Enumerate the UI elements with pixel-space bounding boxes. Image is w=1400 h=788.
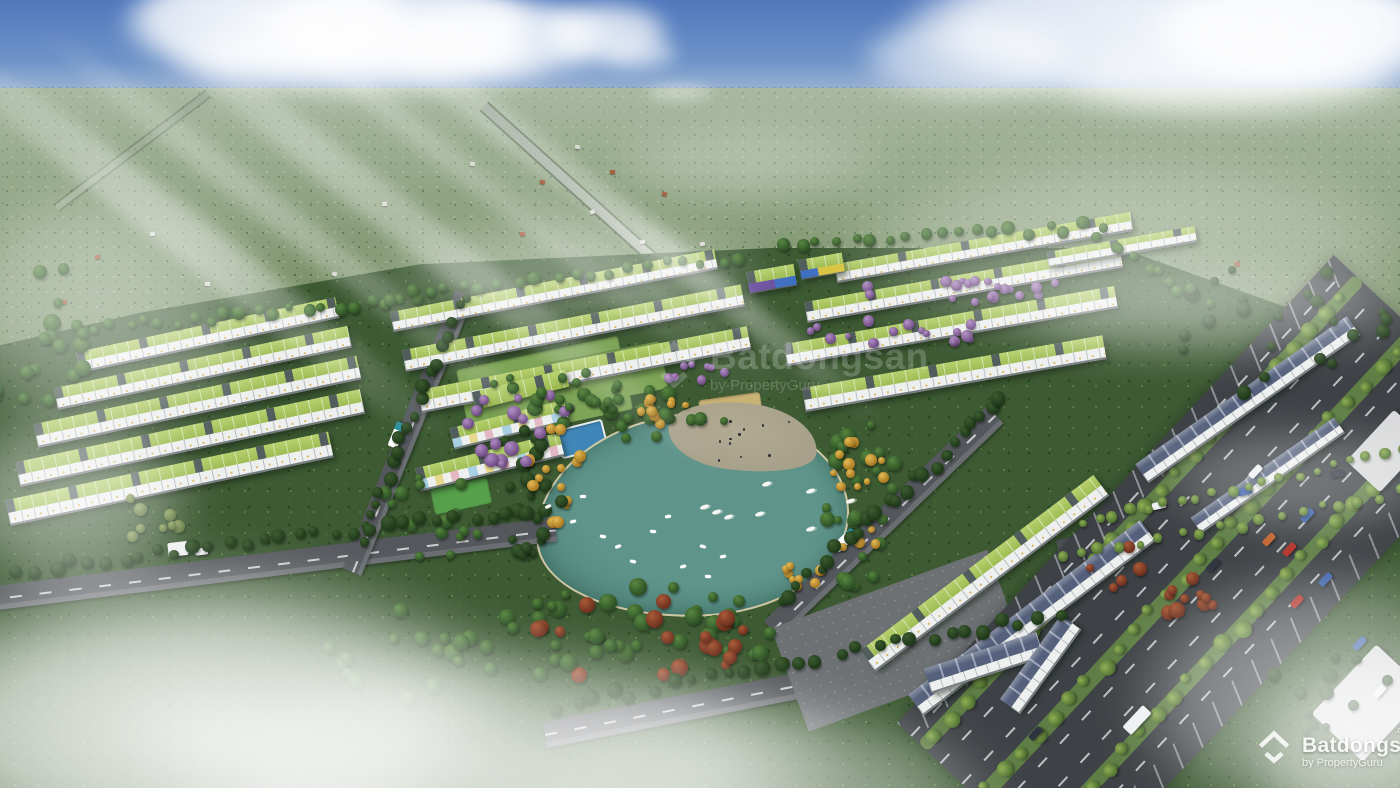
- aerial-render-scene: Batdongsan by PropertyGuru .com.vn Batdo…: [0, 0, 1400, 788]
- mist: [600, 118, 900, 208]
- mist: [980, 255, 1400, 365]
- mist: [1150, 420, 1400, 540]
- fog-layer: [0, 0, 1400, 788]
- light-ray: [225, 0, 791, 430]
